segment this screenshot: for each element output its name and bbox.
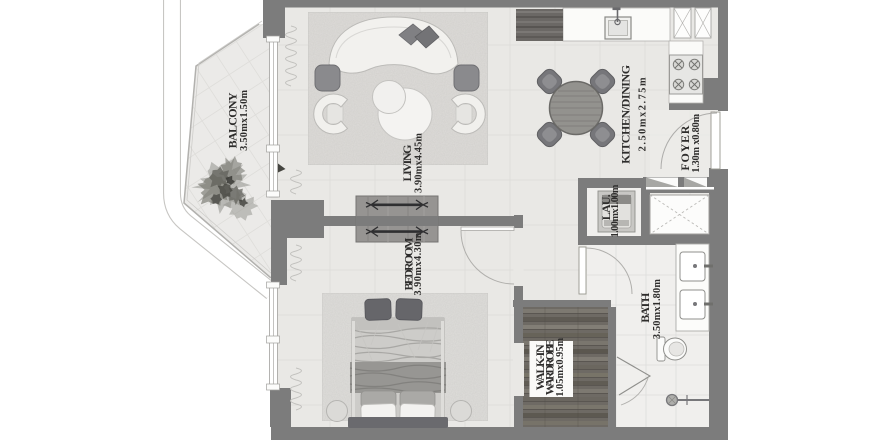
svg-text:3.90mx4.45m: 3.90mx4.45m [414, 133, 425, 193]
svg-text:BALCONY: BALCONY [226, 92, 240, 148]
svg-text:LIVING: LIVING [400, 145, 414, 182]
svg-text:BATH: BATH [638, 292, 652, 323]
svg-text:3.50mx1.50m: 3.50mx1.50m [239, 89, 250, 150]
svg-text:1.05mx0.95m: 1.05mx0.95m [555, 337, 566, 396]
svg-text:3.50mx1.80m: 3.50mx1.80m [652, 279, 663, 339]
svg-text:1.30m x0.80m: 1.30m x0.80m [691, 113, 702, 172]
svg-text:FOYER: FOYER [678, 125, 692, 170]
svg-text:3.90mx4.30m: 3.90mx4.30m [413, 232, 424, 295]
svg-text:1.00mx1.00m: 1.00mx1.00m [610, 184, 621, 237]
svg-text:2.50mx2.75m: 2.50mx2.75m [637, 77, 648, 151]
svg-text:KITCHEN/DINING: KITCHEN/DINING [618, 65, 632, 164]
